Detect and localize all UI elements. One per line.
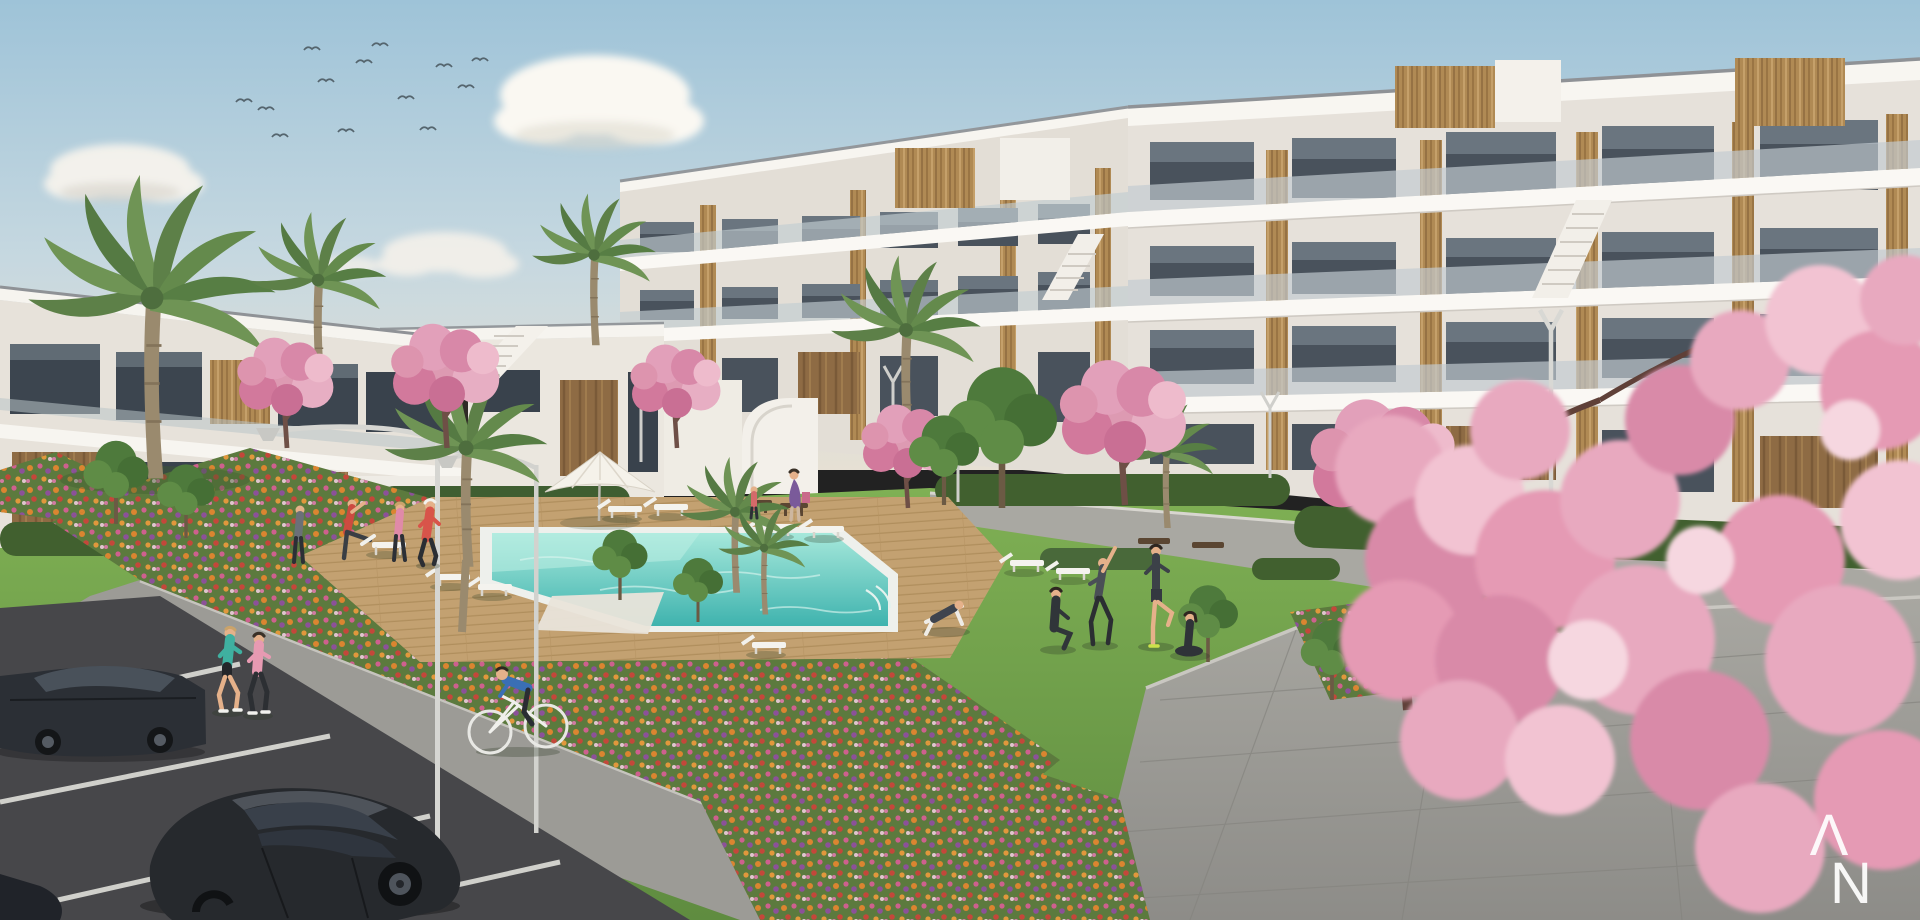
- rooftop-wood-box: [1395, 66, 1495, 128]
- architectural-rendering: Λ N: [0, 0, 1920, 920]
- rendering-canvas: Λ N: [0, 0, 1920, 920]
- pool-area: [300, 497, 1006, 662]
- rooftop-wood-box: [1735, 58, 1845, 126]
- parked-sedan: [0, 666, 206, 762]
- rooftop-stair-tower: [1495, 60, 1561, 122]
- sun-ledge: [536, 592, 664, 634]
- rooftop-stair-tower: [1000, 138, 1070, 200]
- watermark-letter-bottom: N: [1830, 851, 1872, 916]
- rooftop-wood-box: [895, 148, 975, 208]
